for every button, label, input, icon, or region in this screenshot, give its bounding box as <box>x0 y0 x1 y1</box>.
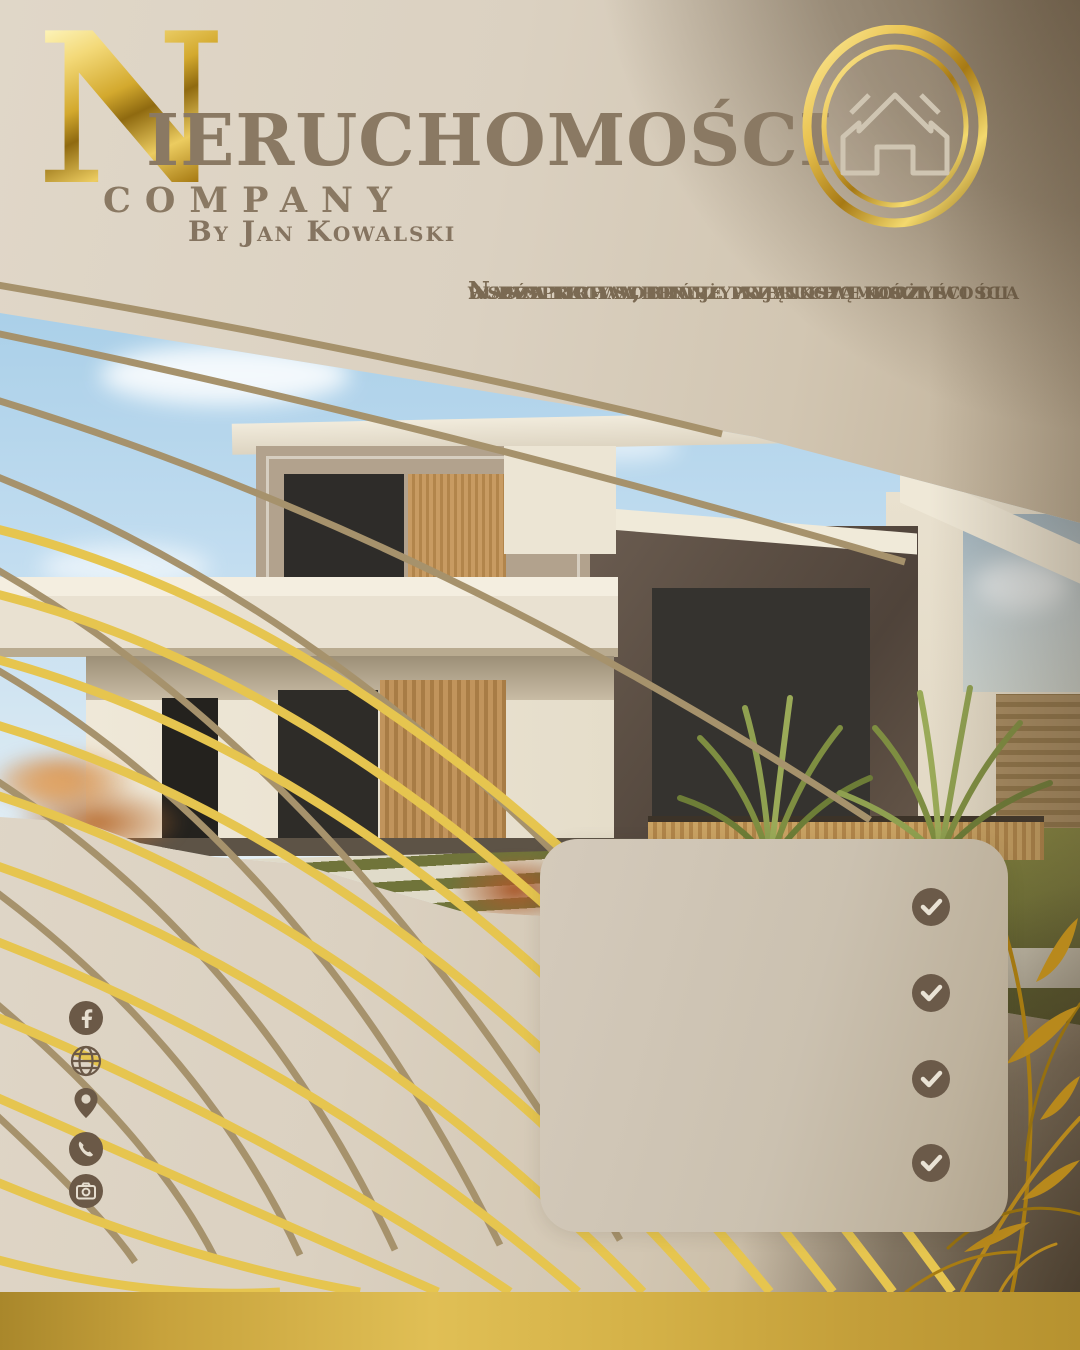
check-icon <box>912 888 950 926</box>
photo-palm-plants <box>640 668 1080 868</box>
camera-icon[interactable] <box>69 1174 103 1208</box>
real-estate-poster: Nasza firma oferuje wyjątkowe możliwości… <box>0 0 1080 1350</box>
brand-byline: By Jan Kowalski <box>188 215 456 248</box>
location-pin-icon[interactable] <box>69 1086 103 1120</box>
badge-house-emblem <box>795 25 995 230</box>
check-icon <box>912 974 950 1012</box>
facebook-icon[interactable] <box>69 1001 103 1035</box>
globe-icon[interactable] <box>69 1044 103 1078</box>
check-icon <box>912 1060 950 1098</box>
photo-lower-window <box>278 690 378 846</box>
photo-wood-door <box>380 680 506 850</box>
brand-name: IERUCHOMOŚCI <box>146 98 833 182</box>
check-icon <box>912 1144 950 1182</box>
footer-gold-bar <box>0 1292 1080 1350</box>
photo-upper-window <box>284 474 404 588</box>
intro-line: wszystkich stron. <box>468 272 696 309</box>
photo-balcony-beam <box>0 596 618 648</box>
photo-wood-slats <box>408 474 506 588</box>
phone-icon[interactable] <box>69 1132 103 1166</box>
